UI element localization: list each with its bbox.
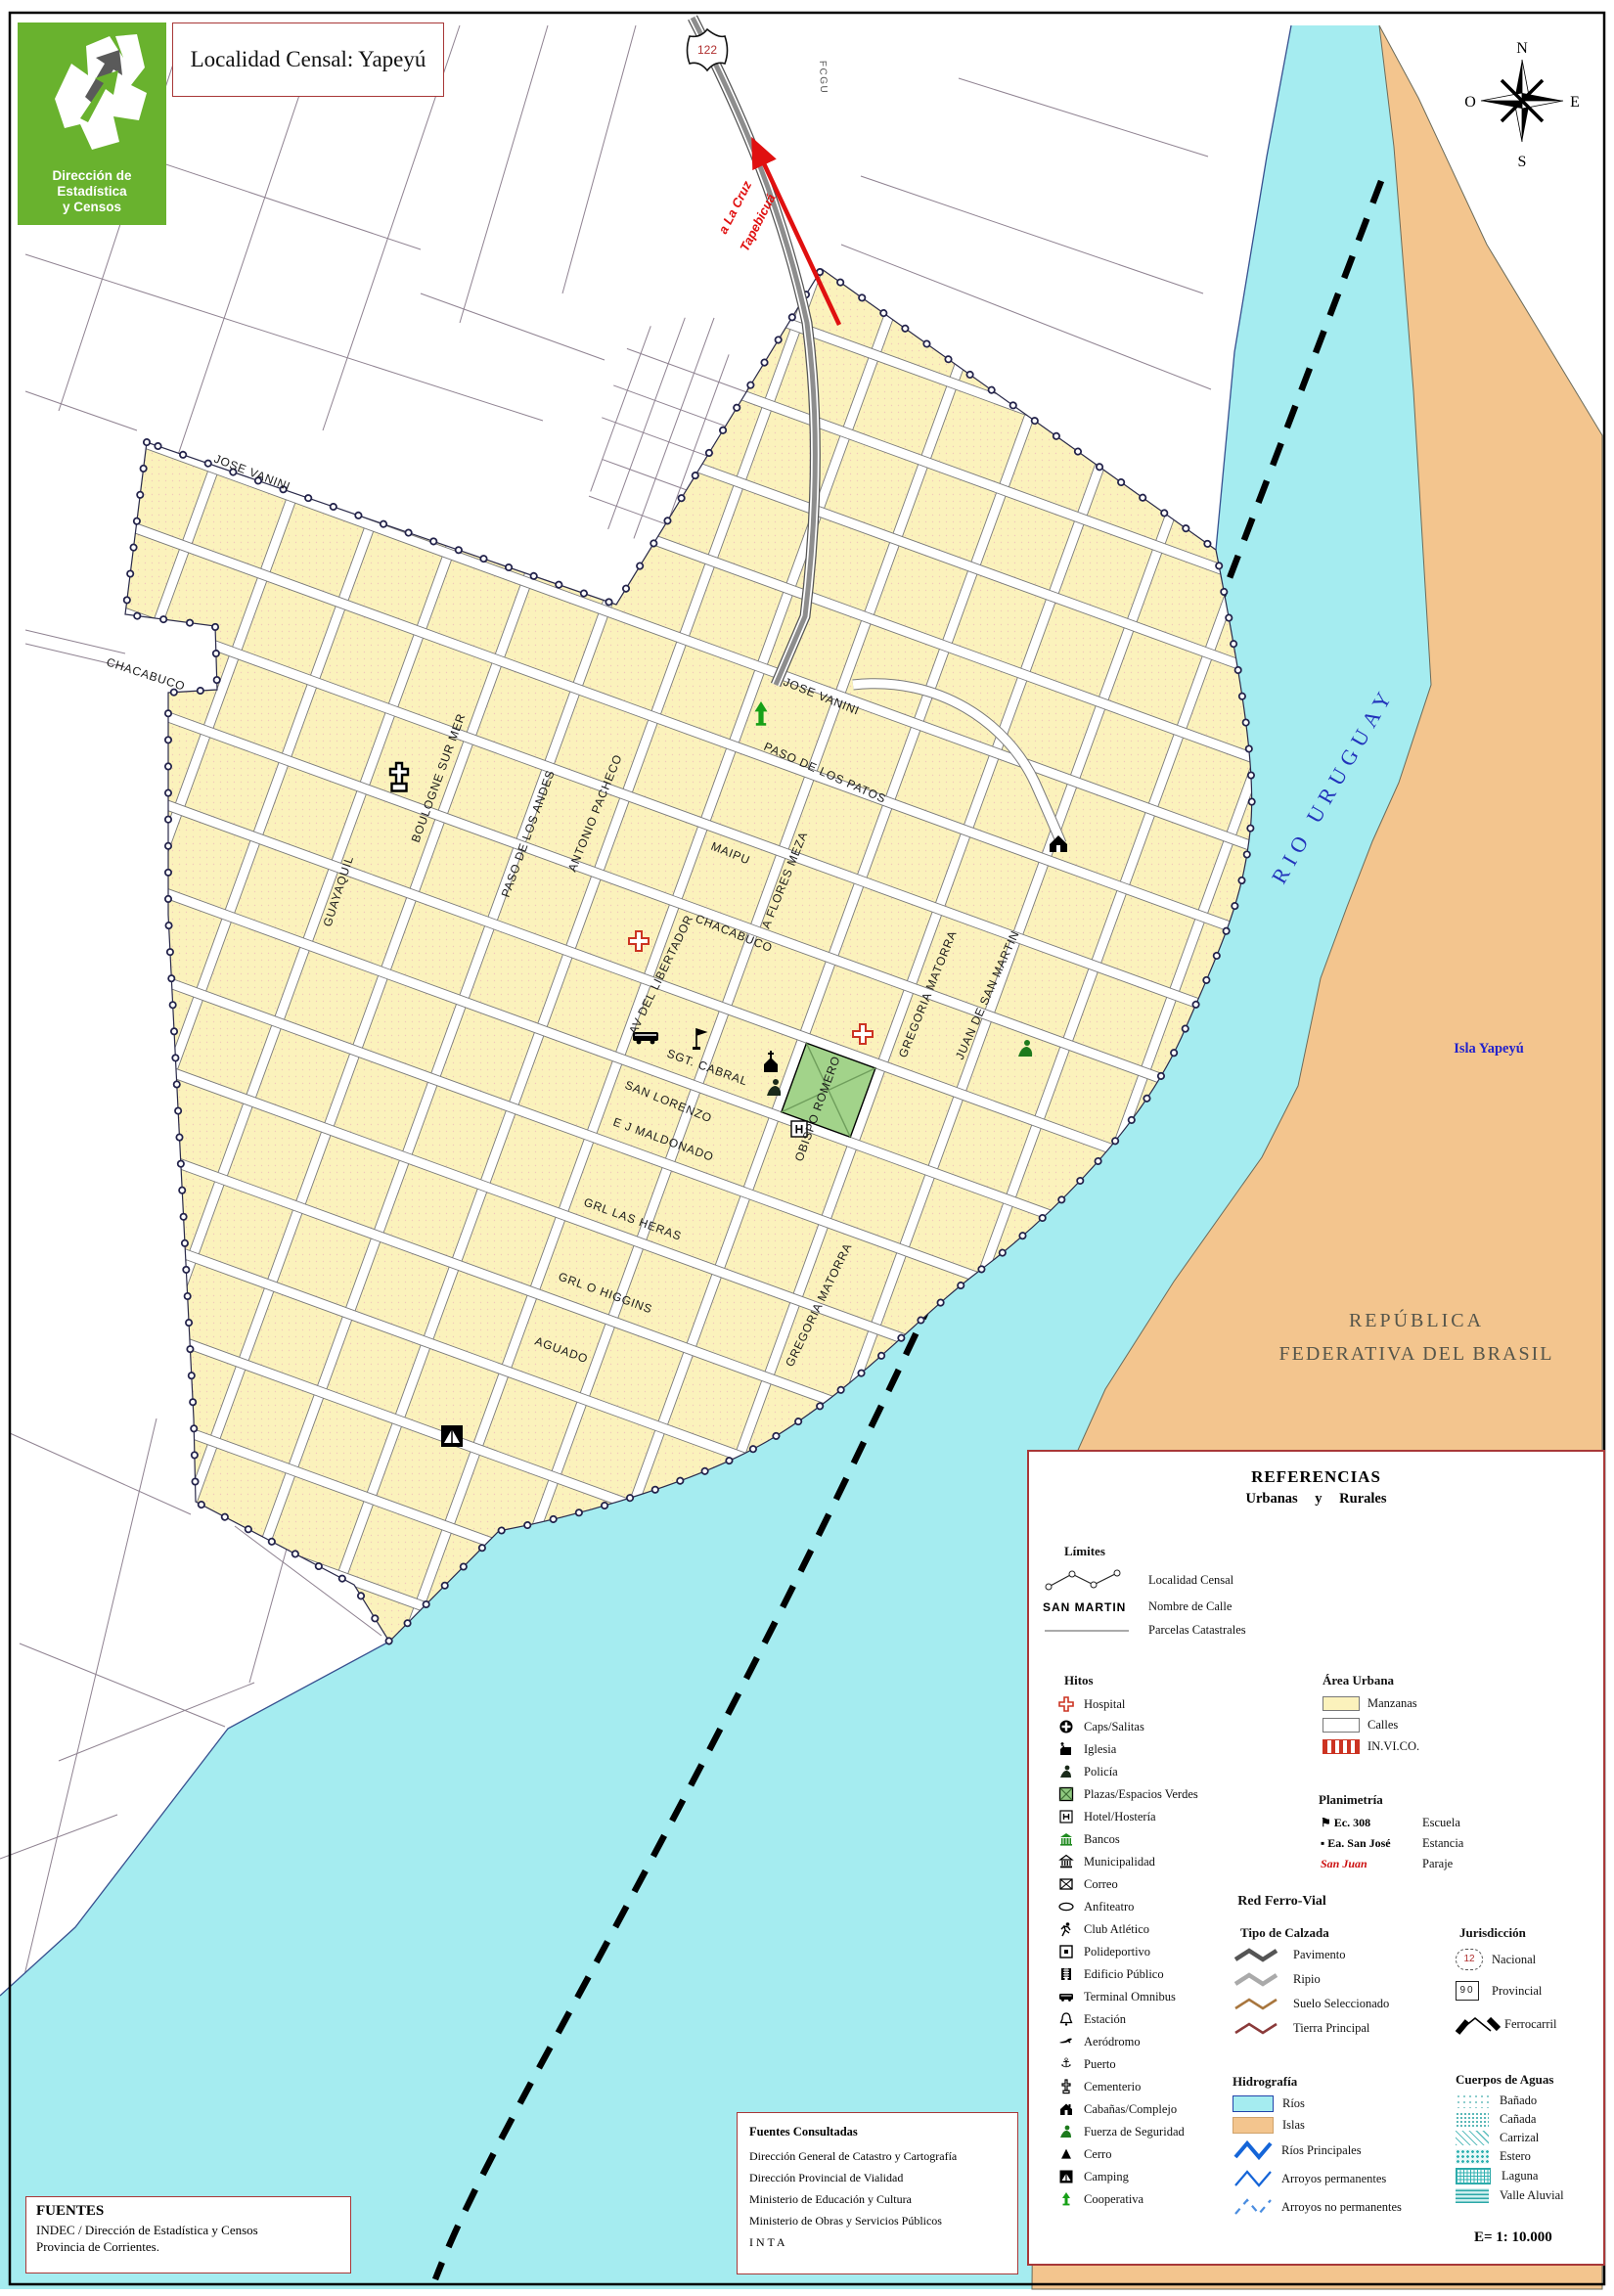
legend-item: Islas [1233, 2117, 1402, 2134]
school-sample: ⚑ Ec. 308 [1321, 1816, 1422, 1830]
legend-label: Bancos [1084, 1832, 1120, 1847]
legend-label: Laguna [1502, 2169, 1538, 2183]
legend-item: Arroyos no permanentes [1233, 2195, 1402, 2219]
security-force-icon [1058, 2124, 1074, 2139]
legend-item: Ferrocarril [1456, 2011, 1556, 2037]
hotel-icon [1058, 1809, 1074, 1824]
legend-label: Caps/Salitas [1084, 1720, 1144, 1734]
legend-label: Cabañas/Complejo [1084, 2102, 1177, 2117]
hill-icon: ▲ [1058, 2146, 1074, 2162]
consulted-source-line: Ministerio de Educación y Cultura [749, 2188, 1017, 2210]
legend-item: Fuerza de Seguridad [1058, 2124, 1198, 2139]
public-building-icon [1058, 1966, 1074, 1982]
legend-label: Islas [1282, 2118, 1305, 2133]
carrizal-swatch [1456, 2131, 1489, 2145]
legend-item: Club Atlético [1058, 1921, 1198, 1937]
logo-text-line2: y Censos [18, 200, 166, 215]
legend-item: 90Provincial [1456, 1981, 1556, 2001]
legend-label: Estancia [1422, 1836, 1463, 1851]
sources-box: FUENTES INDEC / Dirección de Estadística… [25, 2196, 351, 2273]
legend-label: Tierra Principal [1293, 2021, 1369, 2036]
legend-label: Carrizal [1500, 2131, 1539, 2145]
section-tipo-calzada: Tipo de Calzada [1240, 1925, 1329, 1941]
legend-item: Cañada [1456, 2112, 1564, 2127]
legend-label: Cañada [1500, 2112, 1536, 2127]
laguna-swatch [1456, 2168, 1491, 2184]
islas-swatch [1233, 2117, 1274, 2134]
legend-item: Hotel/Hostería [1058, 1809, 1198, 1824]
bus-terminal-icon [1058, 1989, 1074, 2004]
consulted-source-line: Dirección General de Catastro y Cartogra… [749, 2145, 1017, 2167]
legend-item: Estero [1456, 2149, 1564, 2164]
legend-item: Bañado [1456, 2093, 1564, 2108]
section-hitos: Hitos [1064, 1673, 1094, 1688]
census-locality-boundary-icon [1043, 1569, 1133, 1591]
compass-e: E [1570, 94, 1580, 111]
page-title: Localidad Censal: Yapeyú [191, 47, 426, 72]
legend-label: Terminal Omnibus [1084, 1990, 1176, 2004]
sources-line: INDEC / Dirección de Estadística y Censo… [36, 2222, 350, 2238]
legend-item: Terminal Omnibus [1058, 1989, 1198, 2004]
isla-yapeyu-label: Isla Yapeyú [1454, 1041, 1524, 1057]
consulted-source-line: Ministerio de Obras y Servicios Públicos [749, 2210, 1017, 2231]
police-icon [1058, 1764, 1074, 1779]
compass-o: O [1464, 94, 1476, 111]
estancia-sample: ▪ Ea. San José [1321, 1836, 1422, 1851]
legend-label: Ferrocarril [1504, 2017, 1556, 2032]
legend-label: Camping [1084, 2170, 1129, 2184]
legend-label: Municipalidad [1084, 1855, 1155, 1869]
health-post-icon [1058, 1719, 1074, 1734]
legend-label: Parcelas Catastrales [1148, 1623, 1246, 1638]
legend-item: Iglesia [1058, 1741, 1198, 1757]
estero-swatch [1456, 2149, 1489, 2164]
compass-n: N [1516, 40, 1528, 57]
consulted-source-line: Dirección Provincial de Vialidad [749, 2167, 1017, 2188]
legend-item: Bancos [1058, 1831, 1198, 1847]
legend-item: Ríos [1233, 2095, 1402, 2112]
legend-label: Localidad Censal [1148, 1573, 1233, 1588]
rios-swatch [1233, 2095, 1274, 2112]
legend-item: Ríos Principales [1233, 2138, 1402, 2162]
legend-item: Policía [1058, 1764, 1198, 1779]
legend-label: Club Atlético [1084, 1922, 1149, 1937]
logo-text-line1: Dirección de Estadística [18, 168, 166, 200]
legend-item: ▪ Ea. San JoséEstancia [1321, 1836, 1463, 1851]
legend-item: Plazas/Espacios Verdes [1058, 1786, 1198, 1802]
station-bell-icon [1058, 2011, 1074, 2027]
athletic-club-icon [1058, 1921, 1074, 1937]
section-area-urbana: Área Urbana [1323, 1673, 1394, 1688]
camping-icon [1058, 2169, 1074, 2184]
legend-item: ⚓Puerto [1058, 2056, 1198, 2072]
legend-item: Parcelas Catastrales [1043, 1623, 1246, 1638]
legend-label: Fuerza de Seguridad [1084, 2125, 1185, 2139]
legend-label: Ríos [1282, 2096, 1305, 2111]
legend-item: IN.VI.CO. [1323, 1739, 1419, 1754]
legend-item: Valle Aluvial [1456, 2188, 1564, 2203]
legend-label: Plazas/Espacios Verdes [1084, 1787, 1198, 1802]
valle-aluvial-swatch [1456, 2188, 1489, 2203]
legend-label: Suelo Seleccionado [1293, 1997, 1389, 2011]
selected-soil-icon [1233, 1996, 1287, 2012]
cemetery-icon [1058, 2079, 1074, 2094]
legend-item: Pavimento [1233, 1947, 1389, 1963]
map-page: 122 FCGU a La Cruz Tapebicuá RIO URUGUAY… [0, 0, 1614, 2296]
legend-label: Nacional [1492, 1953, 1536, 1967]
legend-label: IN.VI.CO. [1367, 1739, 1419, 1754]
legend-label: Hospital [1084, 1697, 1125, 1712]
legend-label: Ríos Principales [1281, 2143, 1362, 2158]
legend-label: Cerro [1084, 2147, 1111, 2162]
consulted-sources-box: Fuentes Consultadas Dirección General de… [737, 2112, 1018, 2274]
legend-label: Cementerio [1084, 2080, 1141, 2094]
legend-item: Edificio Público [1058, 1966, 1198, 1982]
legend-item: Cementerio [1058, 2079, 1198, 2094]
legend-label: Correo [1084, 1877, 1118, 1892]
plaza-icon [1058, 1786, 1074, 1802]
street-name-sample: SAN MARTIN [1043, 1600, 1133, 1614]
cooperative-icon [1058, 2191, 1074, 2207]
compass-s: S [1518, 154, 1527, 170]
railway-fcgu-label: FCGU [817, 61, 829, 95]
legend-item: Localidad Censal [1043, 1569, 1246, 1591]
section-planimetria: Planimetría [1319, 1792, 1383, 1808]
non-permanent-streams-icon [1233, 2195, 1281, 2219]
sports-center-icon [1058, 1944, 1074, 1959]
invico-swatch [1323, 1739, 1360, 1754]
sources-title: FUENTES [36, 2203, 350, 2220]
legend-item: Manzanas [1323, 1696, 1419, 1711]
legend-item: Municipalidad [1058, 1854, 1198, 1869]
legend-item: Arroyos permanentes [1233, 2167, 1402, 2190]
legend-label: Provincial [1492, 1984, 1542, 1999]
route-122-number: 122 [697, 43, 717, 57]
calles-swatch [1323, 1718, 1360, 1733]
main-dirt-road-icon [1233, 2020, 1287, 2037]
canada-swatch [1456, 2112, 1489, 2127]
legend-item: Laguna [1456, 2168, 1564, 2184]
camping-icon [441, 1425, 463, 1447]
legend-item: Cooperativa [1058, 2191, 1198, 2207]
provincial-route-badge: 90 [1456, 1981, 1479, 2001]
legend-item: Polideportivo [1058, 1944, 1198, 1959]
legend-label: Calles [1367, 1718, 1398, 1733]
map-scale: E= 1: 10.000 [1474, 2229, 1552, 2246]
legend-panel: REFERENCIAS Urbanas y Rurales Límites Lo… [1027, 1450, 1605, 2266]
legend-label: Cooperativa [1084, 2192, 1143, 2207]
legend-item: ▲Cerro [1058, 2146, 1198, 2162]
legend-label: Bañado [1500, 2093, 1537, 2108]
brazil-label-line1: REPÚBLICA [1349, 1308, 1484, 1331]
legend-label: Aeródromo [1084, 2035, 1141, 2049]
church-icon [1058, 1741, 1074, 1757]
legend-label: Nombre de Calle [1148, 1599, 1232, 1614]
legend-label: Escuela [1422, 1816, 1460, 1830]
hospital-icon [1058, 1696, 1074, 1712]
legend-label: Paraje [1422, 1857, 1453, 1871]
legend-item: Correo [1058, 1876, 1198, 1892]
aerodrome-icon [1058, 2034, 1074, 2049]
bank-icon [1058, 1831, 1074, 1847]
sources-line: Provincia de Corrientes. [36, 2238, 350, 2255]
port-anchor-icon: ⚓ [1058, 2056, 1074, 2072]
legend-item: Carrizal [1456, 2131, 1564, 2145]
legend-label: Manzanas [1367, 1696, 1417, 1711]
legend-item: Caps/Salitas [1058, 1719, 1198, 1734]
legend-subtitle: Urbanas y Rurales [1029, 1491, 1603, 1508]
legend-item: Calles [1323, 1718, 1419, 1733]
legend-label: Iglesia [1084, 1742, 1116, 1757]
map-title-box: Localidad Censal: Yapeyú [172, 23, 444, 97]
legend-item: Hospital [1058, 1696, 1198, 1712]
legend-title: REFERENCIAS [1029, 1467, 1603, 1487]
post-office-icon [1058, 1876, 1074, 1892]
legend-item: Suelo Seleccionado [1233, 1996, 1389, 2012]
legend-item: Camping [1058, 2169, 1198, 2184]
agency-logo-graphic [18, 23, 166, 159]
national-route-badge: 12 [1456, 1949, 1483, 1970]
legend-item: Tierra Principal [1233, 2020, 1389, 2037]
railway-icon [1456, 2011, 1501, 2037]
legend-item: 12Nacional [1456, 1949, 1556, 1970]
section-red-ferro-vial: Red Ferro-Vial [1029, 1894, 1535, 1910]
legend-label: Pavimento [1293, 1948, 1345, 1962]
legend-label: Puerto [1084, 2057, 1116, 2072]
legend-item: Ripio [1233, 1971, 1389, 1988]
legend-label: Estero [1500, 2149, 1531, 2164]
banado-swatch [1456, 2093, 1489, 2108]
manzanas-swatch [1323, 1696, 1360, 1711]
agency-logo: Dirección de Estadísticay Censos [18, 23, 166, 225]
section-hidrografia: Hidrografía [1233, 2074, 1297, 2090]
legend-label: Valle Aluvial [1500, 2188, 1564, 2203]
permanent-streams-icon [1233, 2167, 1281, 2190]
consulted-sources-title: Fuentes Consultadas [749, 2125, 1017, 2139]
brazil-label-line2: FEDERATIVA DEL BRASIL [1279, 1343, 1554, 1365]
pavement-icon [1233, 1947, 1287, 1963]
legend-label: Ripio [1293, 1972, 1321, 1987]
legend-label: Estación [1084, 2012, 1126, 2027]
legend-label: Policía [1084, 1765, 1118, 1779]
legend-item: ⚑ Ec. 308Escuela [1321, 1816, 1463, 1830]
legend-label: Edificio Público [1084, 1967, 1164, 1982]
legend-item: Cabañas/Complejo [1058, 2101, 1198, 2117]
consulted-source-line: I N T A [749, 2231, 1017, 2253]
legend-item: Aeródromo [1058, 2034, 1198, 2049]
legend-item: SAN MARTIN Nombre de Calle [1043, 1599, 1246, 1614]
legend-label: Hotel/Hostería [1084, 1810, 1156, 1824]
section-jurisdiccion: Jurisdicción [1459, 1925, 1526, 1941]
cabins-icon [1058, 2101, 1074, 2117]
gravel-icon [1233, 1971, 1287, 1988]
main-rivers-icon [1233, 2138, 1281, 2162]
municipality-icon [1058, 1854, 1074, 1869]
cadastral-parcel-line-icon [1043, 1626, 1133, 1636]
section-limites: Límites [1064, 1544, 1105, 1559]
legend-label: Arroyos no permanentes [1281, 2200, 1402, 2215]
legend-label: Arroyos permanentes [1281, 2172, 1386, 2186]
paraje-sample: San Juan [1321, 1857, 1422, 1871]
legend-item: San JuanParaje [1321, 1857, 1463, 1871]
legend-item: Estación [1058, 2011, 1198, 2027]
legend-label: Polideportivo [1084, 1945, 1150, 1959]
section-cuerpos-de-aguas: Cuerpos de Aguas [1456, 2072, 1553, 2088]
